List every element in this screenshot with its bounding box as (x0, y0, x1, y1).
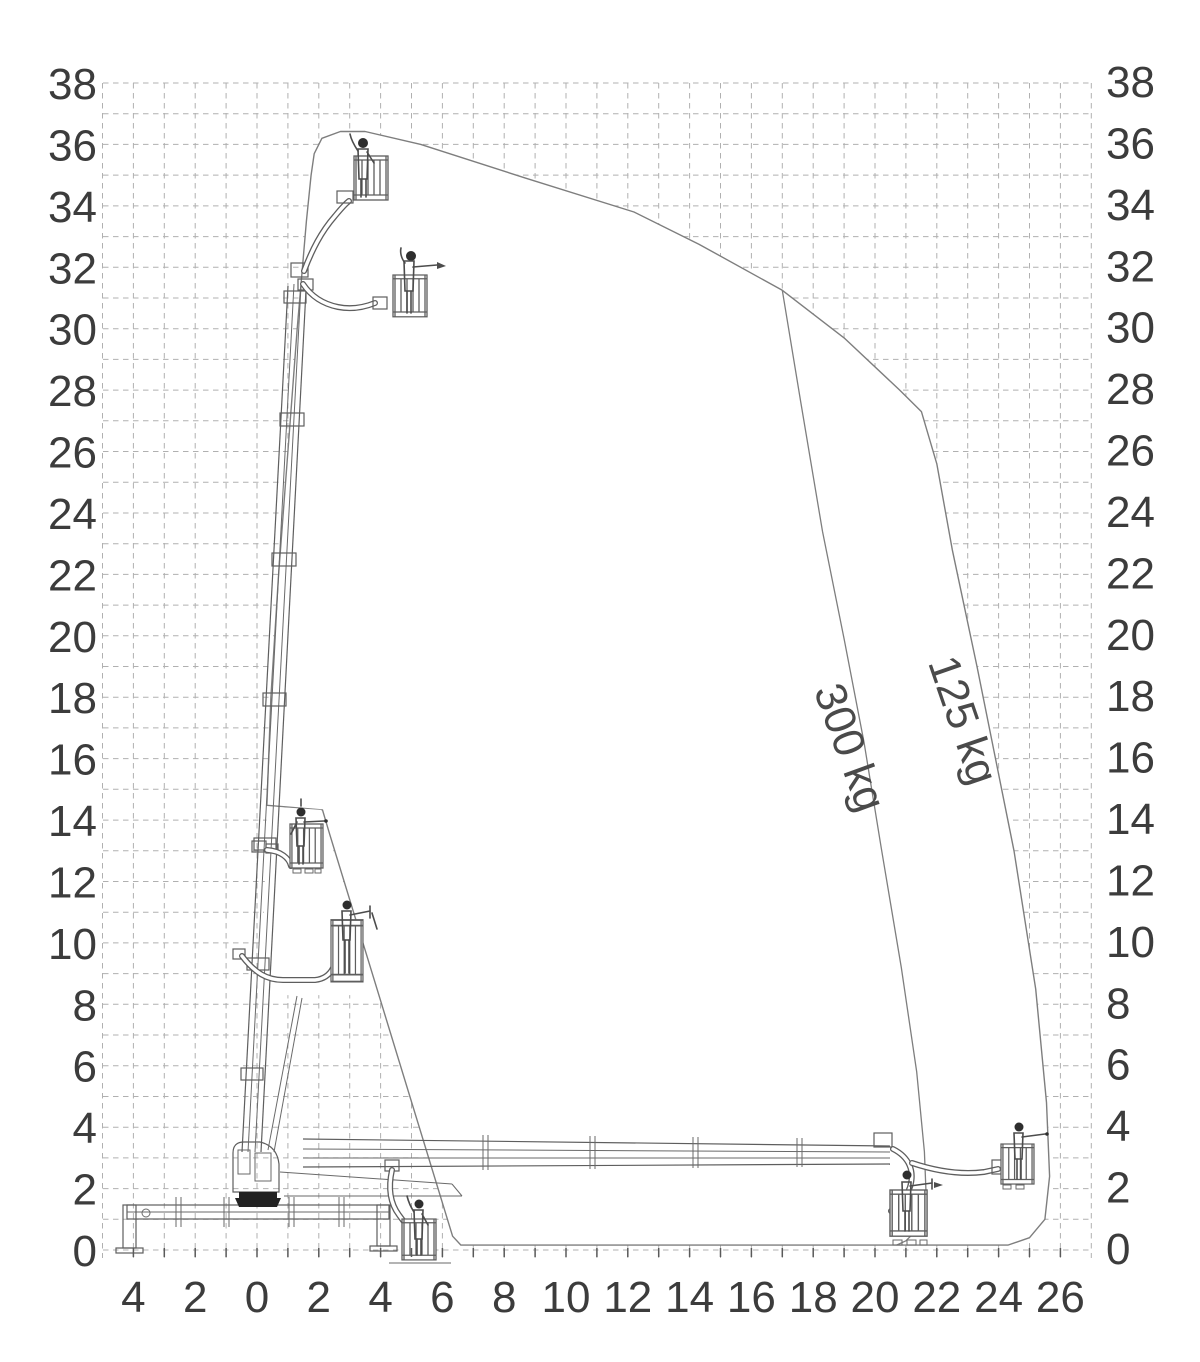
y-axis-tick-label-left: 30 (48, 306, 97, 355)
x-axis-tick-label: 4 (368, 1273, 392, 1322)
x-axis-tick-label: 4 (121, 1273, 145, 1322)
x-axis-tick-label: 14 (665, 1273, 714, 1322)
y-axis-tick-label-left: 34 (48, 183, 97, 232)
axis-ticks (133, 1248, 1060, 1257)
y-axis-tick-label-left: 20 (48, 613, 97, 662)
y-axis-tick-label-left: 18 (48, 674, 97, 723)
y-axis-tick-label-right: 34 (1106, 181, 1155, 230)
y-axis-tick-label-left: 2 (73, 1166, 97, 1215)
y-axis-tick-label-left: 28 (48, 367, 97, 416)
y-axis-tick-label-left: 12 (48, 859, 97, 908)
slew-ring (239, 1192, 277, 1198)
y-axis-tick-label-right: 6 (1106, 1041, 1130, 1090)
y-axis-tick-label-right: 8 (1106, 979, 1130, 1028)
outrigger-jack-right (377, 1205, 390, 1246)
y-axis-tick-label-right: 38 (1106, 58, 1155, 107)
y-axis-tick-label-left: 36 (48, 121, 97, 170)
luffing-cylinder (268, 996, 297, 1150)
x-axis-tick-label: 2 (307, 1273, 331, 1322)
x-axis-tick-label: 20 (851, 1273, 900, 1322)
x-axis-tick-label: 12 (603, 1273, 652, 1322)
y-axis-tick-label-left: 24 (48, 490, 97, 539)
y-axis-tick-label-right: 4 (1106, 1102, 1130, 1151)
y-axis-tick-label-right: 36 (1106, 119, 1155, 168)
x-axis-tick-label: 24 (974, 1273, 1023, 1322)
x-axis-tick-label: 8 (492, 1273, 516, 1322)
y-axis-tick-label-right: 30 (1106, 304, 1155, 353)
y-axis-tick-label-right: 22 (1106, 549, 1155, 598)
x-axis-tick-label: 2 (183, 1273, 207, 1322)
y-axis-tick-label-right: 12 (1106, 857, 1155, 906)
y-axis-tick-label-right: 18 (1106, 672, 1155, 721)
y-axis-tick-label-right: 14 (1106, 795, 1155, 844)
y-axis-tick-label-right: 2 (1106, 1164, 1130, 1213)
y-axis-tick-label-right: 10 (1106, 918, 1155, 967)
x-axis-tick-label: 16 (727, 1273, 776, 1322)
y-axis-tick-label-left: 10 (48, 920, 97, 969)
y-axis-tick-label-left: 22 (48, 551, 97, 600)
y-axis-tick-label-left: 6 (73, 1043, 97, 1092)
y-axis-tick-label-left: 32 (48, 244, 97, 293)
y-axis-tick-label-right: 16 (1106, 734, 1155, 783)
y-axis-tick-label-right: 24 (1106, 488, 1155, 537)
y-axis-tick-label-right: 26 (1106, 427, 1155, 476)
y-axis-tick-label-left: 0 (73, 1227, 97, 1276)
x-axis-tick-label: 26 (1036, 1273, 1085, 1322)
outrigger-jack-left (123, 1205, 136, 1248)
x-axis-tick-label: 22 (912, 1273, 961, 1322)
y-axis-tick-label-right: 0 (1106, 1225, 1130, 1274)
y-axis-tick-label-right: 32 (1106, 242, 1155, 291)
x-axis-tick-label: 0 (245, 1273, 269, 1322)
working-envelope-diagram: 4202468101214161820222426002244668810101… (0, 0, 1200, 1362)
y-axis-tick-label-right: 28 (1106, 365, 1155, 414)
y-axis-tick-label-left: 14 (48, 797, 97, 846)
y-axis-tick-label-left: 26 (48, 429, 97, 478)
x-axis-tick-label: 18 (789, 1273, 838, 1322)
x-axis-tick-label: 6 (430, 1273, 454, 1322)
x-axis-tick-label: 10 (542, 1273, 591, 1322)
y-axis-tick-label-left: 38 (48, 60, 97, 109)
y-axis-tick-label-right: 20 (1106, 611, 1155, 660)
y-axis-tick-label-left: 16 (48, 736, 97, 785)
y-axis-tick-label-left: 4 (73, 1104, 97, 1153)
y-axis-tick-label-left: 8 (73, 981, 97, 1030)
